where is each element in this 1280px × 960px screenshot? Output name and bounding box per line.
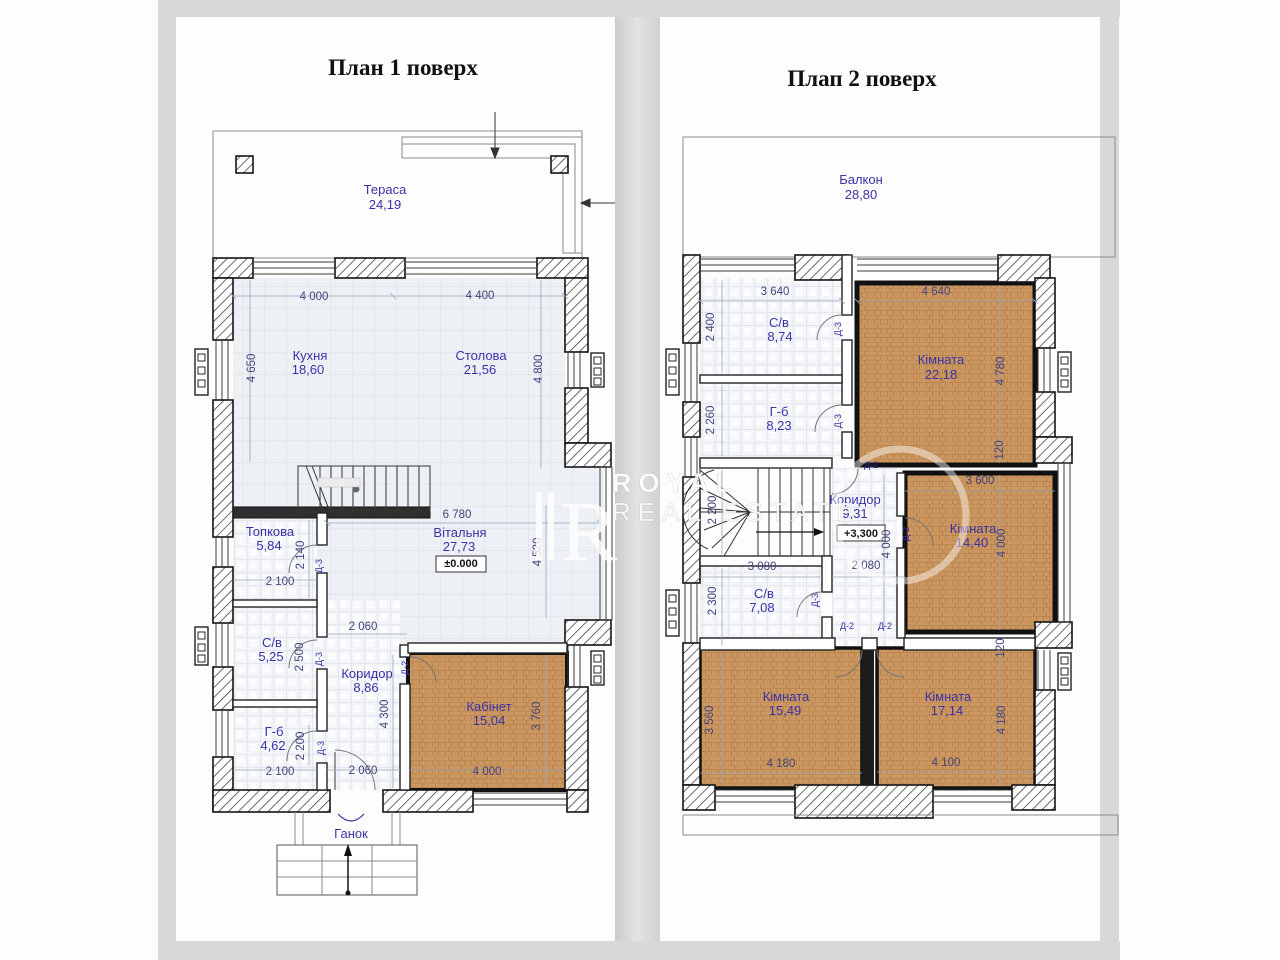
floor2-dim-label: 4 000 <box>881 530 893 559</box>
floor1-dim-label: 2 100 <box>266 766 295 778</box>
floor1-mark-label: ±0.000 <box>444 558 478 570</box>
floor1-dim-label: 4 000 <box>473 766 502 778</box>
floor1-dim-label: 2 500 <box>294 643 306 672</box>
floor2-door-label: Д-3 <box>810 593 820 607</box>
floor1-room-label: Г-б <box>265 724 284 739</box>
floor2-room-label: 7,08 <box>749 600 774 615</box>
stair-annotation <box>318 478 360 487</box>
floor2-room-label: 17,14 <box>931 703 964 718</box>
floor1-dim-label: 4 400 <box>466 290 495 302</box>
floor2-room-label: Кімната <box>950 521 997 536</box>
floor1-room-label: 15,04 <box>473 713 506 728</box>
floor2-dim-label: 4 780 <box>995 357 1007 386</box>
floor2-dim-label: 120 <box>995 638 1007 657</box>
floor1-dim-label: 6 780 <box>443 509 472 521</box>
floor1-room-label: Коридор <box>341 666 392 681</box>
bedroom-divider-wall <box>862 650 874 785</box>
floor2-title: Плап 2 поверх <box>787 66 937 91</box>
floor1-room-label: Вітальня <box>433 525 486 540</box>
floor2-door-label: Д-2 <box>864 460 878 470</box>
room-1440-floor <box>905 473 1055 632</box>
floor2-door-label: Д-2 <box>840 621 854 631</box>
page-fold-divider <box>615 17 660 941</box>
terrace-post <box>551 156 568 173</box>
floor1-room-label: 18,60 <box>292 362 325 377</box>
floor2-room-label: Балкон <box>839 172 883 187</box>
floor1-dim-label: 2 200 <box>295 732 307 761</box>
floor2-dim-label: 2 400 <box>705 313 717 342</box>
floor2-dim-label: 3 080 <box>748 561 777 573</box>
floor2-dim-label: 2 260 <box>705 406 717 435</box>
floor1-room-label: 24,19 <box>369 197 402 212</box>
floor2-door-label: Д-2 <box>901 527 911 541</box>
floor1-room-label: 5,84 <box>256 538 281 553</box>
floor1-dim-label: 4 800 <box>533 355 545 384</box>
frame-right-strip <box>1100 17 1119 960</box>
floor1-room-label: Топкова <box>246 524 295 539</box>
floor1-door-label: Д-3 <box>314 652 324 666</box>
floor2-room-label: С/в <box>754 586 774 601</box>
floor2-room-label: Кімната <box>925 689 972 704</box>
floor2-room-label: Кімната <box>918 352 965 367</box>
floor2-door-label: Д-2 <box>878 621 892 631</box>
floor1-door-label: Д-3 <box>316 741 326 755</box>
floor2-room-label: Г-б <box>770 404 789 419</box>
floor2-room-label: 28,80 <box>845 187 878 202</box>
terrace-post <box>236 156 253 173</box>
frame-top-bar <box>158 0 1120 17</box>
floor2-dim-label: 3 600 <box>966 475 995 487</box>
floor1-door-label: Д-2 <box>400 661 410 675</box>
floor1-room-label: 8,86 <box>353 680 378 695</box>
floor2-room-label: 14,40 <box>956 535 989 550</box>
floor2-door-label: Д-3 <box>833 322 843 336</box>
frame-bottom-bar <box>158 941 1120 960</box>
floor1-door-label: Д-3 <box>314 559 324 573</box>
floor2-dim-label: 2 300 <box>707 587 719 616</box>
floor2-dim-label: 120 <box>994 440 1006 459</box>
frame-left-strip <box>158 0 176 960</box>
floor1-dim-label: 2 060 <box>349 765 378 777</box>
floor2-room-label: Коридор <box>829 492 880 507</box>
floor2-room-label: Кімната <box>763 689 810 704</box>
floor2-room-label: 9,31 <box>842 506 867 521</box>
floor1-dim-label: 4 300 <box>379 700 391 729</box>
floor2-room-label: 8,74 <box>767 329 792 344</box>
floor2-room-label: 8,23 <box>766 418 791 433</box>
floor1-room-label: 5,25 <box>258 649 283 664</box>
floor2-dim-label: 2 200 <box>707 496 719 525</box>
floor1-room-label: 21,56 <box>464 362 497 377</box>
floor1-room-label: 4,62 <box>260 738 285 753</box>
floor-plan-page: План 1 поверх Плап 2 поверх <box>0 0 1280 960</box>
floor2-dim-label: 4 100 <box>932 757 961 769</box>
floor1-title: План 1 поверх <box>328 55 478 80</box>
floor1-dim-label: 2 140 <box>295 541 307 570</box>
floor1-room-label: С/в <box>262 635 282 650</box>
floor1-dim-label: 2 100 <box>266 576 295 588</box>
floor1-room-label: Ганок <box>334 826 368 841</box>
floor1-dim-label: 4 000 <box>300 291 329 303</box>
floor2-dim-label: 4 640 <box>922 286 951 298</box>
floor2-door-label: Д-3 <box>833 414 843 428</box>
floor2-mark-label: +3,300 <box>844 528 878 540</box>
floor1-room-label: 27,73 <box>443 539 476 554</box>
floor2-dim-label: 4 180 <box>767 758 796 770</box>
floor1-dim-label: 4 650 <box>246 354 258 383</box>
floor2-dim-label: 3 640 <box>761 286 790 298</box>
floor2-room-label: 15,49 <box>769 703 802 718</box>
floor2-dim-label: 3 560 <box>704 706 716 735</box>
floor1-dim-label: 4 520 <box>532 538 544 567</box>
floor1-room-label: Столова <box>455 348 507 363</box>
porch-roof <box>795 785 933 818</box>
floor2-room-label: 22,18 <box>925 367 958 382</box>
floor-plan-canvas: План 1 поверх Плап 2 поверх <box>0 0 1280 960</box>
floor1-room-label: Кабінет <box>466 699 511 714</box>
floor2-dim-label: 2 080 <box>852 560 881 572</box>
floor2-room-label: С/в <box>769 315 789 330</box>
floor1-dim-label: 2 060 <box>349 621 378 633</box>
floor2-dim-label: 4 180 <box>996 706 1008 735</box>
floor1-room-label: Кухня <box>293 348 328 363</box>
floor2-dim-label: 4 000 <box>996 529 1008 558</box>
floor1-dim-label: 3 760 <box>531 702 543 731</box>
floor1-room-label: Тераса <box>364 182 407 197</box>
